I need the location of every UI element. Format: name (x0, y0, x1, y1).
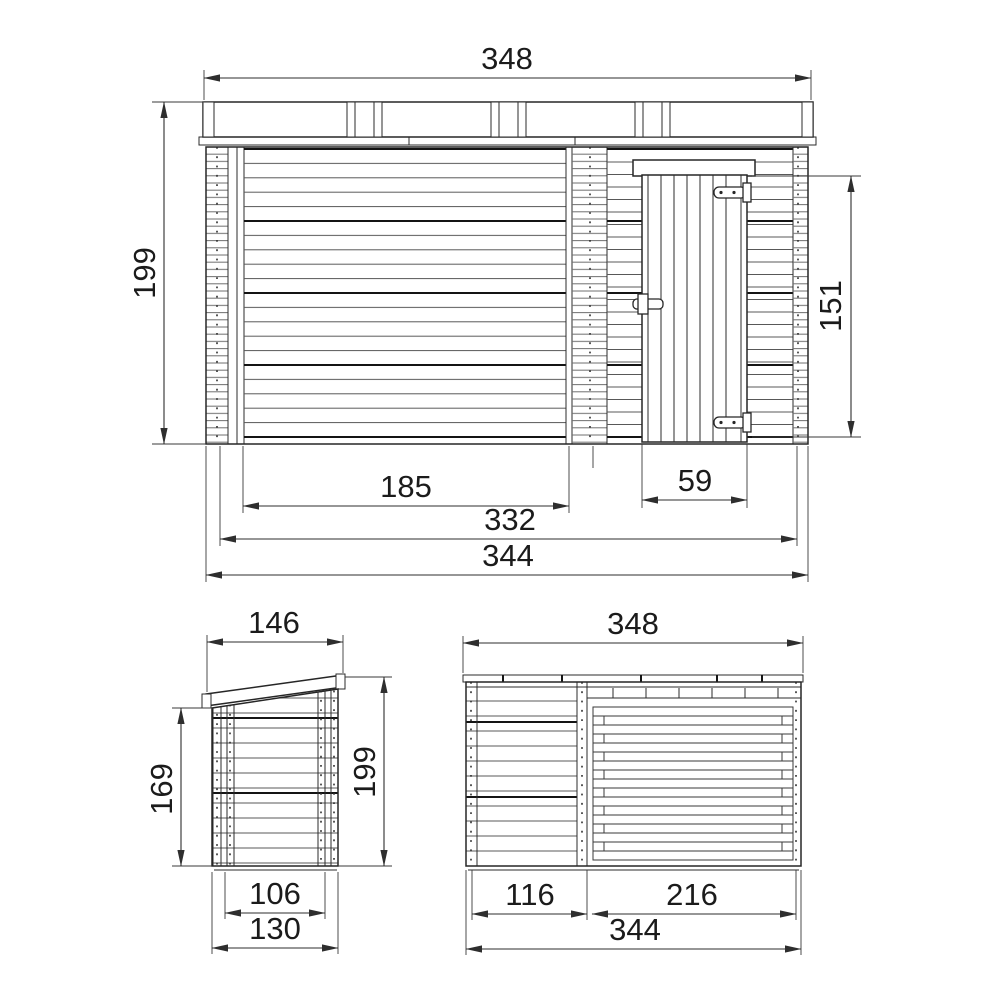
rear-view: 348 116 216 344 (463, 606, 803, 955)
dim-label-inner-depth: 106 (249, 876, 301, 911)
dim-label-wall-height: 199 (127, 247, 162, 299)
fascia-bracket (347, 102, 382, 137)
door-header-board (633, 160, 755, 176)
dim-side-front-height: 199 (338, 677, 392, 866)
dim-front-roof-width: 348 (204, 41, 811, 100)
left-wall-plank-shadows (244, 147, 566, 444)
side-plank-shadows (212, 689, 338, 866)
corner-log-ends (793, 147, 808, 444)
dim-label-inner-width: 332 (484, 502, 536, 537)
dim-label-roof-depth: 146 (248, 605, 300, 640)
fascia-end-cap (802, 102, 813, 137)
rear-left-plank-shadows (466, 687, 577, 866)
rear-slats (593, 707, 793, 860)
front-door (633, 160, 755, 442)
rail-ticks (613, 688, 778, 698)
dim-label-door-width: 59 (678, 463, 712, 498)
roof-end-cap (336, 674, 345, 689)
dim-label-front-wall-height: 199 (347, 746, 382, 798)
fascia-bracket (491, 102, 526, 137)
front-view: 348 199 151 185 59 (127, 41, 861, 582)
dim-label-left-section-width: 116 (505, 877, 554, 912)
dim-label-roof-width: 348 (481, 41, 533, 76)
fascia-bracket (635, 102, 670, 137)
dim-rear-roof-width: 348 (463, 606, 803, 673)
dim-rear-left-section: 116 (472, 870, 587, 920)
dim-label-overall-width: 344 (609, 912, 661, 947)
dim-front-door-width: 59 (593, 444, 747, 508)
dim-front-wall-height: 199 (127, 102, 206, 444)
roof-edge-board (199, 137, 816, 145)
technical-drawing-canvas: 348 199 151 185 59 (0, 0, 1000, 1000)
roof-end-cap (202, 694, 211, 708)
rear-roof-edge (463, 675, 803, 682)
dim-label-rear-wall-height: 169 (144, 763, 179, 815)
dim-label-overall-width: 344 (482, 538, 534, 573)
dim-side-rear-height: 169 (144, 708, 212, 866)
fascia-end-cap (203, 102, 214, 137)
rear-left-wall (466, 682, 587, 866)
dim-label-opening-width: 185 (380, 469, 432, 504)
dim-label-roof-width: 348 (607, 606, 659, 641)
dim-label-overall-depth: 130 (249, 911, 301, 946)
front-roof (199, 102, 816, 145)
shed-dimension-drawing: 348 199 151 185 59 (0, 0, 1000, 1000)
dim-label-door-height: 151 (813, 280, 848, 332)
dim-label-right-section-width: 216 (666, 877, 718, 912)
side-view: 146 169 199 106 130 (144, 605, 392, 954)
